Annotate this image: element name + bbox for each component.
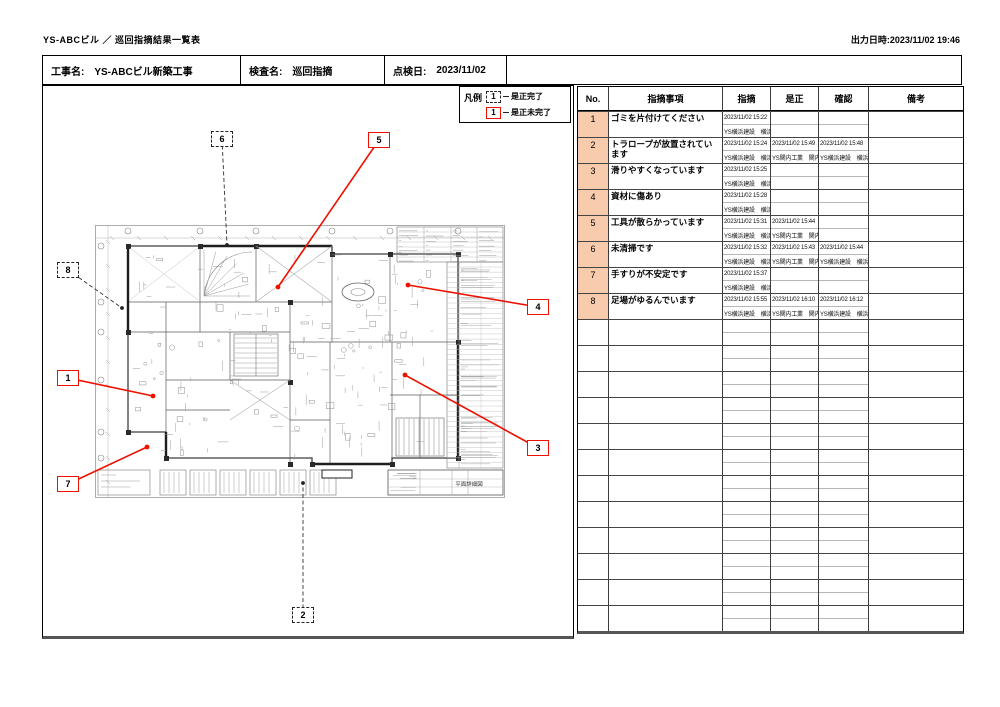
legend-completed-label: 是正完了 [511, 91, 543, 102]
legend-row-completed: 1 是正完了 [486, 89, 551, 104]
legend-title: 凡例 [464, 91, 482, 120]
legend-box: 凡例 1 是正完了 1 是正未完了 [459, 86, 571, 123]
plan-marker-2[interactable]: 2 [292, 607, 314, 623]
legend-incomplete-label: 是正未完了 [511, 107, 551, 118]
plan-marker-7[interactable]: 7 [57, 476, 79, 492]
legend-incomplete-marker-icon: 1 [486, 107, 501, 119]
plan-marker-1[interactable]: 1 [57, 370, 79, 386]
legend-tick [503, 112, 509, 113]
legend-row-incomplete: 1 是正未完了 [486, 105, 551, 120]
plan-marker-8[interactable]: 8 [57, 262, 79, 278]
plan-marker-5[interactable]: 5 [368, 132, 390, 148]
plan-marker-4[interactable]: 4 [527, 299, 549, 315]
plan-marker-3[interactable]: 3 [527, 440, 549, 456]
inspection-report-sheet: YS-ABCビル ／ 巡回指摘結果一覧表 出力日時:2023/11/02 19:… [0, 0, 1000, 707]
plan-title-block-text: 平面詳細図 [455, 480, 483, 488]
legend-completed-marker-icon: 1 [486, 91, 501, 103]
legend-tick [503, 96, 509, 97]
plan-marker-6[interactable]: 6 [211, 131, 233, 147]
